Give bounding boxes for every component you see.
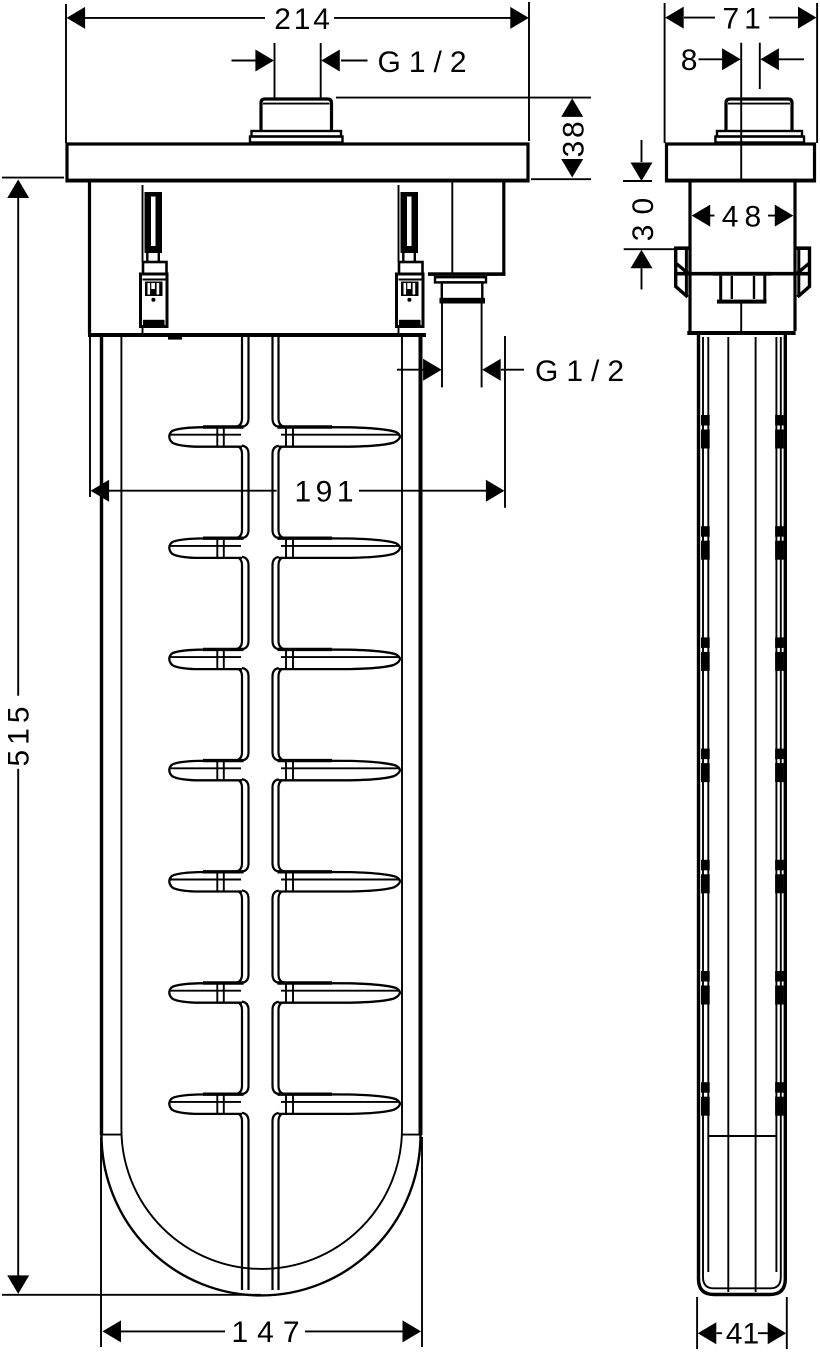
svg-text:515: 515 [3, 701, 36, 766]
svg-text:G1/2: G1/2 [535, 355, 632, 388]
svg-text:G1/2: G1/2 [378, 46, 475, 79]
svg-text:30: 30 [627, 188, 660, 241]
svg-text:147: 147 [232, 1316, 309, 1349]
svg-text:214: 214 [274, 3, 332, 36]
svg-text:48: 48 [722, 201, 767, 234]
svg-text:41: 41 [726, 1318, 759, 1351]
svg-text:8: 8 [681, 44, 698, 77]
svg-text:38: 38 [557, 119, 590, 158]
svg-text:191: 191 [295, 475, 359, 508]
svg-text:71: 71 [723, 2, 766, 35]
